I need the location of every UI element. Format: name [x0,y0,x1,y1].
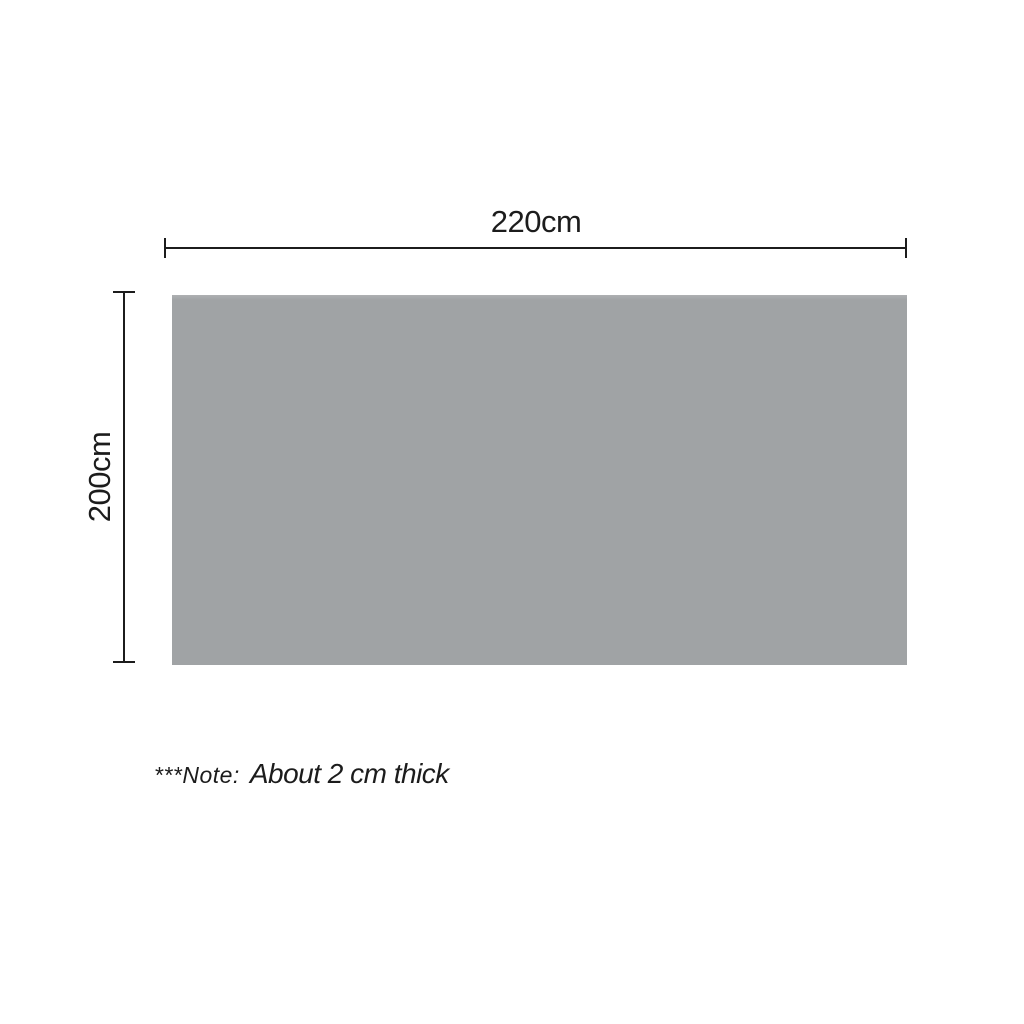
height-dimension-endcap-bottom [113,661,135,663]
thickness-note-text: About 2 cm thick [250,758,449,790]
width-dimension-label: 220cm [165,204,907,240]
width-dimension-endcap-left [164,238,166,258]
width-dimension-endcap-right [905,238,907,258]
height-dimension-label: 200cm [82,397,118,557]
dimension-diagram: 220cm 200cm ***Note: About 2 cm thick [0,0,1024,1024]
thickness-note-prefix: ***Note: [154,762,240,789]
product-panel [172,295,907,665]
width-dimension-line [165,247,907,249]
height-dimension-line [123,292,125,662]
thickness-note: ***Note: About 2 cm thick [154,758,449,790]
height-dimension-endcap-top [113,291,135,293]
